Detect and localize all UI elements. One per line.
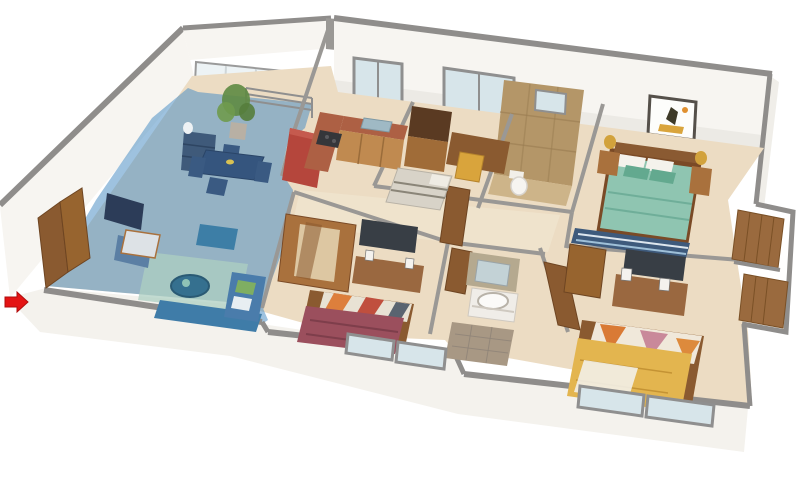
floor-plan-render: [0, 0, 800, 498]
niche-wardrobe-1: [732, 210, 784, 268]
bedroom2-photo-frame-1: [365, 250, 374, 261]
floor-plan-svg: [0, 0, 800, 498]
lamp-right-shade: [695, 151, 707, 165]
stove-burner-2: [332, 139, 336, 143]
coffee-table-decor: [182, 279, 190, 287]
bedroom2-photo-frame-2: [405, 258, 414, 269]
balcony-plant-leaves-3: [239, 103, 255, 121]
wall-art-sun: [682, 107, 688, 113]
nightstand-left: [597, 150, 620, 176]
stove-burner-1: [325, 135, 329, 139]
nightstand-right: [689, 166, 712, 196]
dining-vase: [183, 122, 193, 134]
bedroom3-photo-frame-1: [621, 268, 632, 281]
bathmid-mirror: [475, 260, 510, 286]
lamp-left-shade: [604, 135, 616, 149]
coffee-table: [171, 275, 209, 297]
living-armchair: [121, 230, 160, 258]
balcony-plant-pot: [229, 122, 247, 140]
toilet-bowl: [511, 177, 527, 195]
door-bedroom3: [564, 244, 606, 298]
dining-bowl: [226, 160, 234, 165]
dining-chair-front: [206, 177, 228, 196]
balcony-plant-leaves-2: [217, 102, 235, 122]
bookshelf-lower: [404, 136, 448, 172]
study-chair: [455, 152, 484, 182]
bookshelf-upper: [408, 106, 452, 142]
bathroom-attached-window: [535, 90, 566, 114]
bedroom3-photo-frame-2: [659, 278, 670, 291]
